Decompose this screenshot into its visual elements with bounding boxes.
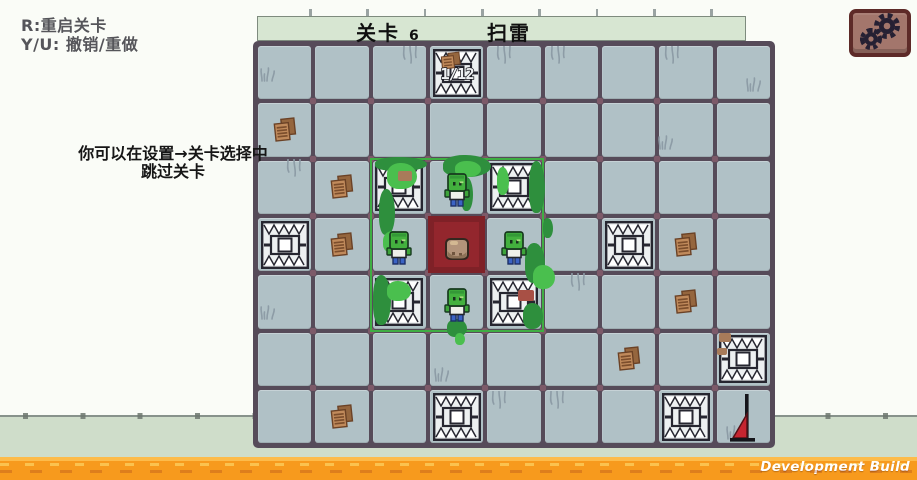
skip-level-tip: 你可以在设置→关卡选择中 跳过关卡 (53, 145, 293, 181)
trap-tile (261, 221, 309, 273)
board-cell (545, 333, 598, 386)
board-cell (258, 333, 311, 386)
leaf-pile (616, 346, 642, 376)
zombie-sprite (386, 231, 412, 269)
board-cell (717, 275, 770, 328)
board-cell (373, 390, 426, 443)
board-cell (602, 161, 655, 214)
vine-decoration (548, 391, 568, 414)
board-cell (602, 103, 655, 156)
vine-decoration (663, 46, 683, 69)
board-cell (602, 275, 655, 328)
grass-decoration (433, 365, 453, 386)
board-cell (315, 46, 368, 99)
board-cell (602, 390, 655, 443)
board-cell (487, 333, 540, 386)
grid-corner-dot (712, 385, 718, 391)
grid-corner-dot (597, 328, 603, 334)
board-cell (315, 103, 368, 156)
grid-corner-dot (654, 270, 660, 276)
grid-corner-dot (654, 156, 660, 162)
grid-corner-dot (597, 385, 603, 391)
grid-corner-dot (712, 98, 718, 104)
moss-patch (455, 333, 465, 345)
grid-corner-dot (597, 270, 603, 276)
grid-corner-dot (540, 385, 546, 391)
moss-patch (497, 167, 509, 195)
grid-corner-dot (712, 328, 718, 334)
settings-button[interactable] (849, 9, 911, 57)
board-cell (602, 46, 655, 99)
grid-corner-dot (597, 98, 603, 104)
level-number: 6 (409, 28, 419, 44)
leaf-pile (329, 404, 355, 434)
game-board: 1/12 (253, 41, 775, 448)
hud-keybinds: R:重启关卡 Y/U: 撤销/重做 (21, 16, 138, 54)
leaf-pile (329, 174, 355, 204)
trap-tile (662, 393, 710, 445)
grid-corner-dot (712, 270, 718, 276)
grid-corner-dot (540, 98, 546, 104)
grass-decoration (657, 133, 677, 154)
rock-sprite (444, 237, 470, 265)
board-cell (487, 103, 540, 156)
vine-decoration (495, 46, 515, 69)
trap-tile (605, 221, 653, 273)
game-screen: R:重启关卡 Y/U: 撤销/重做 你可以在设置→关卡选择中 跳过关卡 1/12… (0, 0, 917, 480)
board-cell (659, 333, 712, 386)
grid-corner-dot (712, 213, 718, 219)
moss-patch (373, 275, 391, 325)
level-name: 扫雷 (487, 17, 531, 46)
grass-decoration (745, 75, 765, 96)
board-cell (717, 218, 770, 271)
undo-redo-keybind: Y/U: 撤销/重做 (21, 35, 138, 54)
board-cell (717, 103, 770, 156)
grid-corner-dot (597, 156, 603, 162)
leaf-pile (272, 117, 298, 147)
board-cell (373, 333, 426, 386)
grid-corner-dot (425, 98, 431, 104)
level-title-bar: 关卡 6 扫雷 (257, 16, 746, 41)
moss-patch (543, 218, 553, 238)
vine-decoration (549, 46, 569, 69)
flag-marker (726, 392, 760, 448)
board-cell (659, 161, 712, 214)
grid-corner-dot (310, 328, 316, 334)
zombie-sprite (501, 231, 527, 269)
level-label: 关卡 6 (356, 17, 419, 46)
moss-patch (533, 265, 555, 289)
board-cell (430, 103, 483, 156)
svg-text:1/12: 1/12 (440, 65, 474, 83)
leaf-pile (673, 289, 699, 319)
vine-decoration (401, 46, 421, 69)
board-cell (258, 390, 311, 443)
grid-corner-dot (310, 270, 316, 276)
moss-patch (529, 161, 545, 213)
tip-line1: 你可以在设置→关卡选择中 (53, 145, 293, 163)
moss-patch (387, 281, 411, 301)
board-cell (717, 161, 770, 214)
accent-debris (719, 333, 731, 342)
grass-decoration (259, 65, 279, 86)
tip-line2: 跳过关卡 (53, 163, 293, 181)
zombie-sprite (444, 288, 470, 326)
trap-tile (719, 335, 767, 387)
vine-decoration (569, 273, 589, 296)
dev-build-label: Development Build (760, 459, 910, 475)
grid-corner-dot (482, 98, 488, 104)
board-cell (545, 161, 598, 214)
board-cell (373, 103, 426, 156)
leaf-pile (329, 232, 355, 262)
board-cell (315, 275, 368, 328)
zombie-sprite (444, 173, 470, 211)
grid-corner-dot (310, 385, 316, 391)
moss-patch (523, 303, 543, 329)
vine-decoration (490, 391, 510, 414)
accent-debris (717, 348, 727, 355)
grid-corner-dot (368, 385, 374, 391)
grid-corner-dot (425, 385, 431, 391)
grid-corner-dot (654, 385, 660, 391)
grid-corner-dot (654, 328, 660, 334)
grid-corner-dot (482, 385, 488, 391)
grid-corner-dot (712, 156, 718, 162)
board-cell (545, 103, 598, 156)
leaf-pile (673, 232, 699, 262)
grid-corner-dot (654, 98, 660, 104)
grass-decoration (259, 303, 279, 324)
board-cell (315, 333, 368, 386)
counter-trap-tile: 1/12 (433, 49, 481, 101)
gears-icon (857, 12, 903, 55)
accent-debris (518, 290, 534, 301)
grid-corner-dot (310, 213, 316, 219)
moss-patch (379, 189, 395, 235)
grid-corner-dot (368, 98, 374, 104)
accent-debris (398, 171, 412, 181)
grid-corner-dot (654, 213, 660, 219)
restart-keybind: R:重启关卡 (21, 16, 138, 35)
trap-tile (433, 393, 481, 445)
grid-corner-dot (310, 156, 316, 162)
grid-corner-dot (597, 213, 603, 219)
dev-build-bar: Development Build (0, 457, 917, 480)
